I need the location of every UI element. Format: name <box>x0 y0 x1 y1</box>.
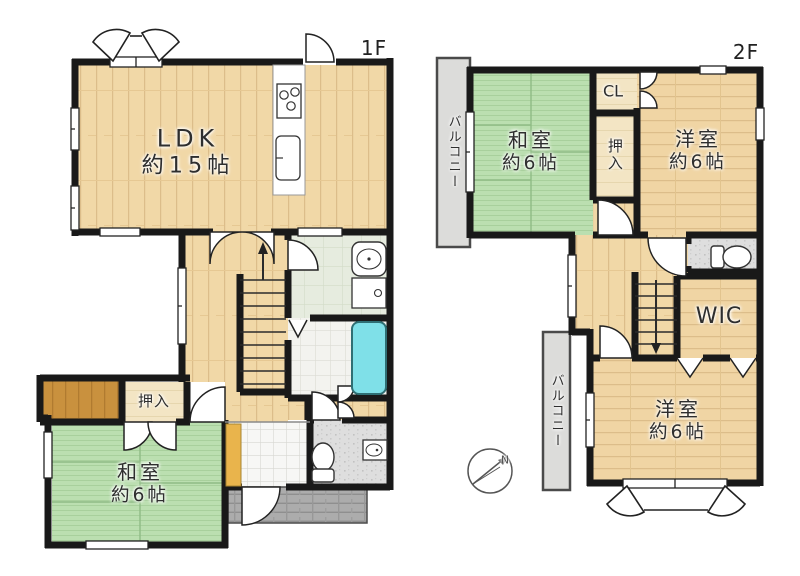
room-label-washitsu-1f: 和室 約6帖 <box>111 461 169 507</box>
room-name-washitsu-2f: 和室 <box>502 129 560 153</box>
floor-label-1f: 1F <box>361 37 387 61</box>
room-name-ldk: LDK <box>141 125 234 153</box>
toilet-2f-fixtures <box>711 246 751 268</box>
room-size-yoshitsu-south: 約6帖 <box>649 422 707 444</box>
room-name-yoshitsu-south: 洋室 <box>649 398 707 422</box>
room-label-ldk: LDK 約15帖 <box>141 125 234 180</box>
toilet-tank-2f <box>711 246 724 268</box>
bathtub <box>352 322 386 394</box>
room-label-yoshitsu-south: 洋室 約6帖 <box>649 398 707 444</box>
room-size-ldk: 約15帖 <box>141 153 234 179</box>
toilet-bowl-2f <box>723 246 751 268</box>
floor-label-2f: 2F <box>733 41 759 65</box>
room-label-yoshitsu-north: 洋室 約6帖 <box>669 128 727 174</box>
room-size-washitsu-2f: 約6帖 <box>502 153 560 175</box>
door-kitchen-exterior <box>306 34 334 62</box>
closet-label-oshiire-1f: 押入 <box>138 393 170 411</box>
balcony-label-north: バルコニー <box>445 115 460 190</box>
kitchen-fixtures <box>273 65 305 195</box>
room-size-washitsu-1f: 約6帖 <box>111 485 169 507</box>
toilet-sink-1f <box>363 440 387 460</box>
balcony-label-south: バルコニー <box>548 374 563 449</box>
compass-north-label: N <box>501 455 509 468</box>
room-label-washitsu-2f: 和室 約6帖 <box>502 129 560 175</box>
closet-label-wic: WIC <box>696 304 743 330</box>
storage-wood-area <box>40 378 122 422</box>
toilet-tank-1f <box>312 469 334 482</box>
washer-pan <box>352 278 386 308</box>
room-size-yoshitsu-north: 約6帖 <box>669 152 727 174</box>
room-name-washitsu-1f: 和室 <box>111 461 169 485</box>
toilet-bowl-1f <box>312 443 334 471</box>
closet-label-cl: CL <box>603 83 623 102</box>
room-name-yoshitsu-north: 洋室 <box>669 128 727 152</box>
closet-label-oshiire-2f: 押入 <box>605 138 623 172</box>
floor-plan-canvas: 1F 2F LDK 約15帖 和室 約6帖 押入 バルコニー バルコニー 和室 … <box>0 0 800 576</box>
shoe-cabinet <box>226 424 241 486</box>
